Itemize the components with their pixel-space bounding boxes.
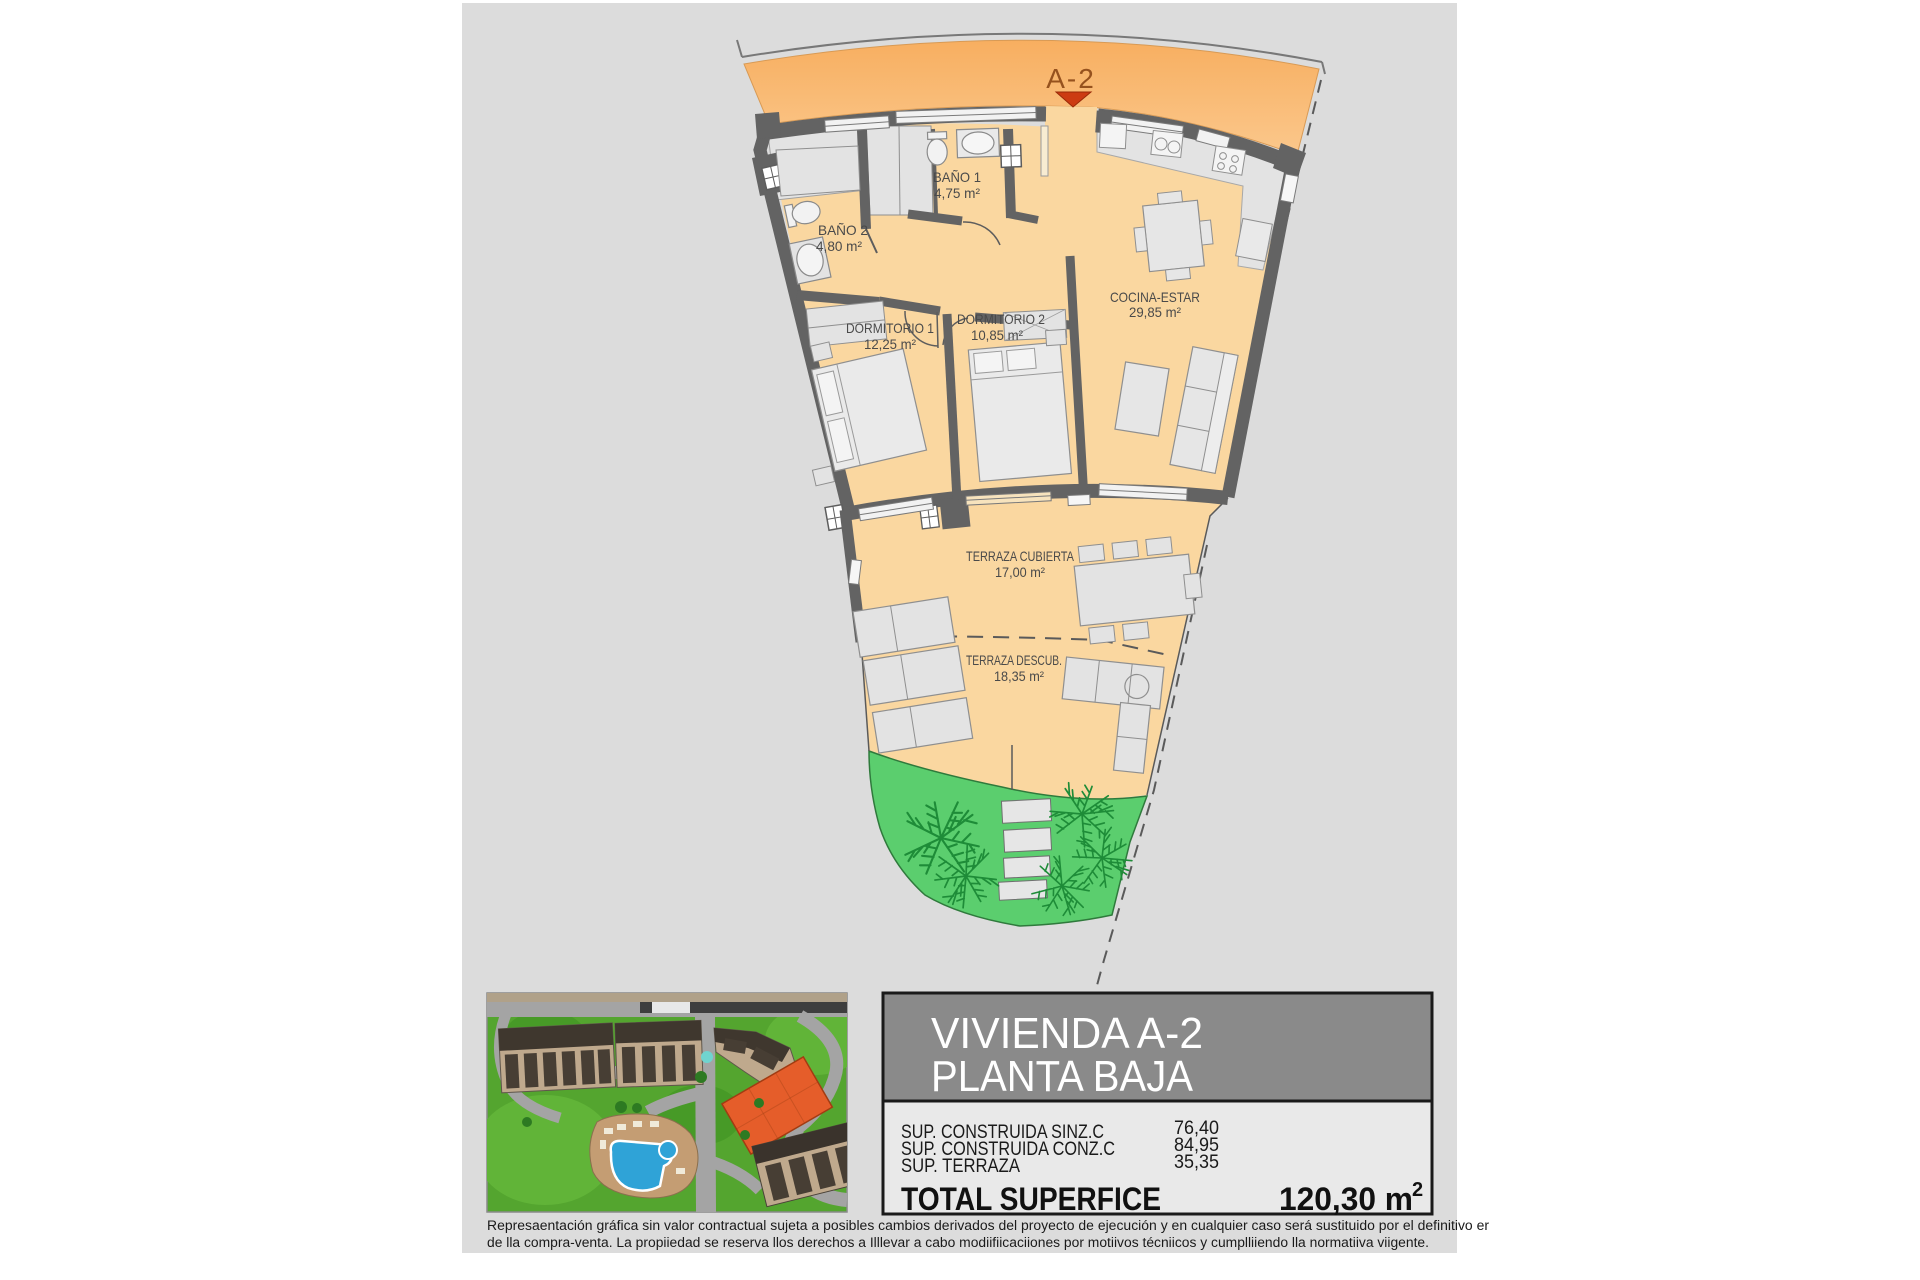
svg-text:A-2: A-2: [1046, 63, 1096, 94]
svg-text:12,25 m²: 12,25 m²: [864, 336, 916, 352]
svg-text:4,75 m²: 4,75 m²: [934, 185, 980, 201]
svg-text:17,00 m²: 17,00 m²: [995, 564, 1045, 580]
svg-text:COCINA-ESTAR: COCINA-ESTAR: [1110, 289, 1200, 305]
svg-text:BAÑO 1: BAÑO 1: [933, 169, 981, 185]
svg-text:TERRAZA CUBIERTA: TERRAZA CUBIERTA: [966, 548, 1075, 564]
svg-text:35,35: 35,35: [1174, 1152, 1219, 1173]
svg-text:2: 2: [1412, 1179, 1423, 1201]
svg-text:SUP. TERRAZA: SUP. TERRAZA: [901, 1156, 1020, 1177]
svg-text:TOTAL SUPERFICE: TOTAL SUPERFICE: [901, 1181, 1161, 1217]
svg-text:120,30 m: 120,30 m: [1279, 1181, 1413, 1217]
svg-text:de lla compra-venta. La propii: de lla compra-venta. La propiiedad se re…: [487, 1235, 1429, 1250]
svg-text:4,80 m²: 4,80 m²: [816, 238, 862, 254]
svg-text:DORMITORIO 1: DORMITORIO 1: [846, 320, 934, 336]
svg-text:29,85 m²: 29,85 m²: [1129, 304, 1181, 320]
svg-text:PLANTA BAJA: PLANTA BAJA: [931, 1052, 1194, 1101]
svg-text:Represaentación gráfica sin va: Represaentación gráfica sin valor contra…: [487, 1218, 1490, 1233]
svg-text:10,85 m²: 10,85 m²: [971, 327, 1023, 343]
svg-text:BAÑO 2: BAÑO 2: [818, 222, 868, 238]
svg-text:VIVIENDA A-2: VIVIENDA A-2: [931, 1009, 1203, 1058]
svg-text:DORMITORIO 2: DORMITORIO 2: [957, 311, 1045, 327]
svg-text:18,35 m²: 18,35 m²: [994, 668, 1044, 684]
svg-text:TERRAZA DESCUB.: TERRAZA DESCUB.: [966, 652, 1062, 668]
